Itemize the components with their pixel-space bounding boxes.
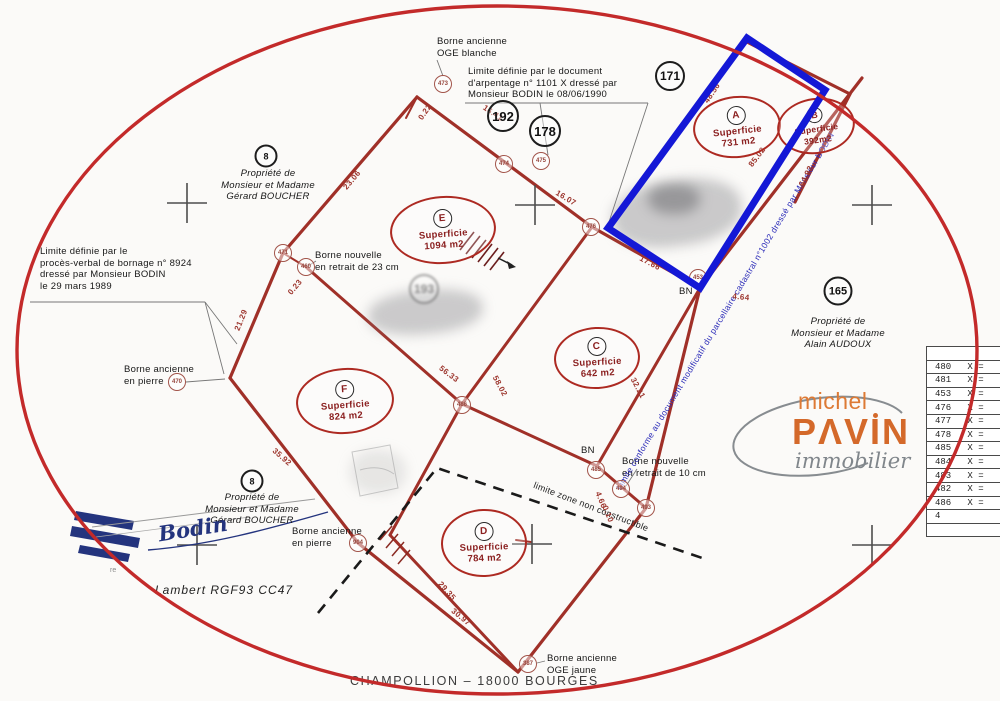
- direction-arrow: [498, 258, 516, 269]
- survey-point: 471: [274, 244, 292, 262]
- measurement: 21.29: [233, 308, 250, 332]
- table-row: 478 X =: [927, 429, 1000, 443]
- measurement: 0.23: [286, 277, 304, 296]
- parcel-a-letter: A: [725, 105, 746, 126]
- survey-point: 473: [434, 75, 452, 93]
- cadastral-ref: 8: [255, 145, 278, 168]
- note-bn-453: BN: [679, 286, 693, 298]
- measurement: 17.66: [638, 254, 662, 272]
- table-row: 482 X =: [927, 483, 1000, 497]
- coordinate-table: 480 X = 481 X = 453 X = 476 X = 477 X = …: [926, 346, 1000, 537]
- parcel-e: E Superficie 1094 m2: [388, 192, 498, 267]
- logo-pavin-text: PΛVIN: [792, 411, 910, 453]
- measurement: 0.22: [416, 102, 433, 121]
- address-footer: CHAMPOLLION – 18000 BOURGES: [350, 674, 599, 688]
- table-row: 480 X =: [927, 361, 1000, 375]
- parcel-c-area: 642 m2: [581, 367, 616, 380]
- survey-point: 476: [582, 218, 600, 236]
- note-borne-oge-jaune: Borne ancienne OGE jaune: [547, 653, 617, 676]
- survey-point: 453: [689, 269, 707, 287]
- cadastral-ref: 178: [529, 115, 561, 147]
- hatching-d: [380, 526, 410, 564]
- note-arpentage: Limite définie par le document d'arpenta…: [468, 66, 617, 101]
- surveyor-signature: Bodin: [156, 511, 229, 547]
- blue-highlight-parcel-a: [608, 38, 825, 288]
- logo-i-dot: [873, 413, 878, 418]
- parcel-f-area: 824 m2: [329, 410, 364, 423]
- parcel-a: A Superficie 731 m2: [690, 92, 784, 163]
- cadastral-ref: 165: [824, 277, 853, 306]
- parcel-e-area: 1094 m2: [424, 239, 464, 253]
- parcel-a-area: 731 m2: [721, 135, 756, 149]
- logo-immobilier-text: immobilier: [795, 449, 910, 473]
- survey-point: 470: [168, 373, 186, 391]
- survey-point: 494: [612, 480, 630, 498]
- measurement: 23.06: [341, 169, 362, 192]
- table-row: 477 X =: [927, 415, 1000, 429]
- note-borne-nouvelle-23: Borne nouvelle en retrait de 23 cm: [315, 250, 399, 273]
- measurement: 30.97: [450, 606, 473, 627]
- table-row: [927, 524, 1000, 537]
- survey-point: 387: [519, 655, 537, 673]
- table-row: 476 X =: [927, 401, 1000, 415]
- signature-fragment: re: [110, 567, 116, 574]
- survey-point: 486: [453, 396, 471, 414]
- table-row: 4: [927, 510, 1000, 524]
- note-propriete-audoux: Propriété de Monsieur et Madame Alain AU…: [791, 316, 885, 351]
- parcel-e-letter: E: [432, 208, 452, 228]
- measurement: 32.21: [629, 376, 647, 400]
- parcel-f: F Superficie 824 m2: [294, 365, 396, 438]
- table-row: [927, 347, 1000, 361]
- survey-point: 474: [495, 155, 513, 173]
- survey-point: 475: [532, 152, 550, 170]
- table-row: 481 X =: [927, 374, 1000, 388]
- table-row: 485 X =: [927, 442, 1000, 456]
- pavin-logo: michel PΛVIN immobilier: [740, 386, 925, 481]
- parcel-f-letter: F: [334, 379, 354, 399]
- cadastral-plan: Borne ancienne OGE blanche Limite défini…: [0, 0, 1000, 701]
- blurred-area-4: [350, 450, 406, 494]
- parcel-c-letter: C: [586, 337, 606, 357]
- survey-point: 904: [349, 534, 367, 552]
- survey-point: 460: [297, 258, 315, 276]
- survey-point: 493: [637, 499, 655, 517]
- survey-point: 485: [587, 461, 605, 479]
- measurement: 29.35: [436, 580, 458, 603]
- table-row: 486 X =: [927, 497, 1000, 511]
- cadastral-ref: 192: [487, 100, 519, 132]
- blurred-area-2: [648, 184, 700, 214]
- parcel-c: C Superficie 642 m2: [552, 325, 641, 391]
- cadastral-ref: 8: [241, 470, 264, 493]
- note-borne-oge-blanche: Borne ancienne OGE blanche: [437, 36, 507, 59]
- measurement: 58.02: [491, 374, 509, 398]
- table-row: 484 X =: [927, 456, 1000, 470]
- table-row: 453 X =: [927, 388, 1000, 402]
- table-row: 483 X =: [927, 469, 1000, 483]
- measurement: 16.07: [554, 188, 578, 207]
- measurement: 64.92: [797, 164, 815, 188]
- parcel-b-letter: B: [805, 106, 823, 124]
- coordinate-system-label: Lambert RGF93 CC47: [155, 583, 293, 597]
- measurement: 4.64: [732, 292, 750, 303]
- note-bn-485: BN: [581, 445, 595, 457]
- note-pv-bornage: Limite définie par le procès-verbal de b…: [40, 246, 192, 292]
- parcel-d-label: Superficie: [460, 541, 509, 554]
- cadastral-ref: 171: [655, 61, 685, 91]
- parcel-d: D Superficie 784 m2: [440, 508, 528, 579]
- cadastral-ref-smudged: 193: [409, 274, 439, 304]
- parcel-d-letter: D: [474, 522, 494, 542]
- note-propriete-boucher-top: Propriété de Monsieur et Madame Gérard B…: [221, 168, 315, 203]
- measurement: 56.33: [437, 364, 460, 385]
- measurement: 35.92: [271, 446, 294, 467]
- parcel-b-area: 392m2: [803, 132, 832, 147]
- parcel-d-area: 784 m2: [467, 552, 501, 564]
